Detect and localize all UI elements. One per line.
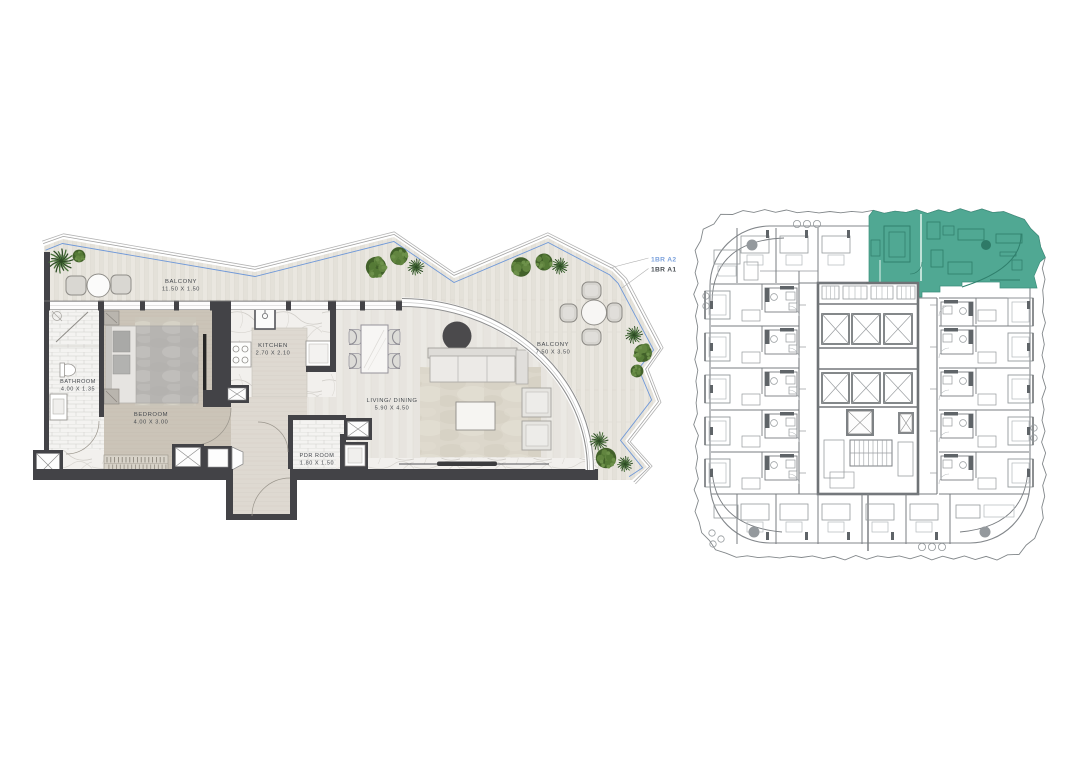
svg-text:11.50 X 1.50: 11.50 X 1.50 bbox=[162, 287, 200, 293]
svg-text:7.50 X 3.50: 7.50 X 3.50 bbox=[536, 350, 571, 356]
svg-text:1BR A1: 1BR A1 bbox=[651, 267, 676, 274]
svg-text:1BR A2: 1BR A2 bbox=[651, 257, 676, 264]
svg-text:BALCONY: BALCONY bbox=[165, 279, 197, 285]
svg-text:PDR ROOM: PDR ROOM bbox=[300, 453, 335, 459]
svg-text:4.00 X 1.35: 4.00 X 1.35 bbox=[61, 387, 95, 393]
svg-text:BEDROOM: BEDROOM bbox=[134, 412, 168, 418]
svg-text:2.70 X 2.10: 2.70 X 2.10 bbox=[256, 351, 291, 357]
svg-text:BATHROOM: BATHROOM bbox=[60, 379, 96, 385]
svg-text:KITCHEN: KITCHEN bbox=[258, 343, 288, 349]
svg-text:LIVING/ DINING: LIVING/ DINING bbox=[367, 398, 418, 404]
svg-text:1.80 X 1.50: 1.80 X 1.50 bbox=[300, 461, 334, 467]
svg-text:5.90 X 4.50: 5.90 X 4.50 bbox=[375, 406, 410, 412]
svg-text:4.00 X 3.00: 4.00 X 3.00 bbox=[134, 420, 169, 426]
svg-text:BALCONY: BALCONY bbox=[537, 342, 569, 348]
